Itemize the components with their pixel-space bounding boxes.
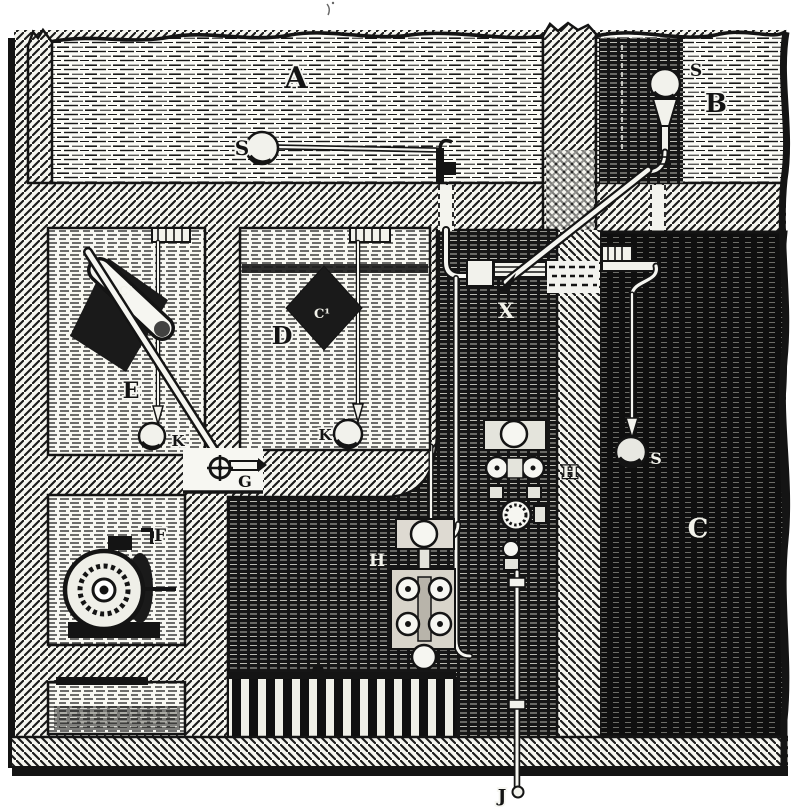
ink-artifact bbox=[327, 2, 334, 15]
fan-room: F bbox=[48, 495, 185, 645]
label-s-c: S bbox=[650, 449, 662, 468]
tank-a-body bbox=[50, 33, 543, 183]
inlet-pipe-c bbox=[602, 261, 658, 271]
label-c: C bbox=[688, 514, 709, 544]
label-g: G bbox=[238, 472, 252, 491]
tank-b: B S bbox=[596, 32, 785, 183]
label-s-a: S bbox=[235, 136, 249, 160]
engraving-canvas: A S B S S C H bbox=[0, 0, 800, 808]
tank-c: S C bbox=[600, 232, 786, 737]
label-c1-d: C¹ bbox=[314, 307, 330, 322]
wall-shaft-c bbox=[557, 230, 600, 737]
label-b: B bbox=[705, 89, 727, 119]
tap-g: G bbox=[183, 448, 267, 492]
label-k-d: K bbox=[318, 426, 332, 444]
inlet-stub-c bbox=[602, 246, 632, 261]
gauge-dial bbox=[501, 421, 527, 447]
label-d: D bbox=[272, 321, 293, 350]
tank-a: A S bbox=[50, 33, 543, 183]
label-x: X bbox=[498, 298, 515, 323]
label-c1-e: C¹ bbox=[119, 284, 134, 298]
channel-b-to-c bbox=[650, 185, 666, 233]
grate-knob bbox=[312, 665, 324, 677]
frame-bottom bbox=[12, 766, 788, 776]
wall-post-left bbox=[28, 30, 52, 183]
water-line-d bbox=[242, 264, 428, 273]
tank-c-body bbox=[600, 232, 786, 737]
wall-crosshatch bbox=[546, 150, 594, 238]
label-h-shaft: H bbox=[562, 463, 578, 483]
pipe-outlet bbox=[513, 787, 524, 798]
floor-grate bbox=[228, 665, 456, 740]
label-h-machine: H bbox=[369, 551, 385, 571]
foundation-band bbox=[12, 737, 788, 767]
label-e: E bbox=[123, 378, 140, 404]
dashed-passage bbox=[547, 261, 599, 293]
label-k-e: K bbox=[171, 432, 185, 450]
engraving-figure: A S B S S C H bbox=[0, 0, 800, 808]
standpipe-a bbox=[436, 148, 444, 183]
frame-left bbox=[8, 38, 15, 768]
tank-d: C¹ D K bbox=[240, 228, 430, 450]
cup bbox=[467, 260, 493, 286]
tap-spout bbox=[230, 461, 258, 470]
label-a: A bbox=[283, 61, 308, 96]
tank-e: C¹ E K bbox=[48, 228, 222, 462]
label-j: J bbox=[496, 786, 507, 807]
label-f: F bbox=[154, 526, 166, 546]
label-s-b: S bbox=[690, 61, 702, 81]
lower-left-chamber bbox=[48, 677, 185, 734]
